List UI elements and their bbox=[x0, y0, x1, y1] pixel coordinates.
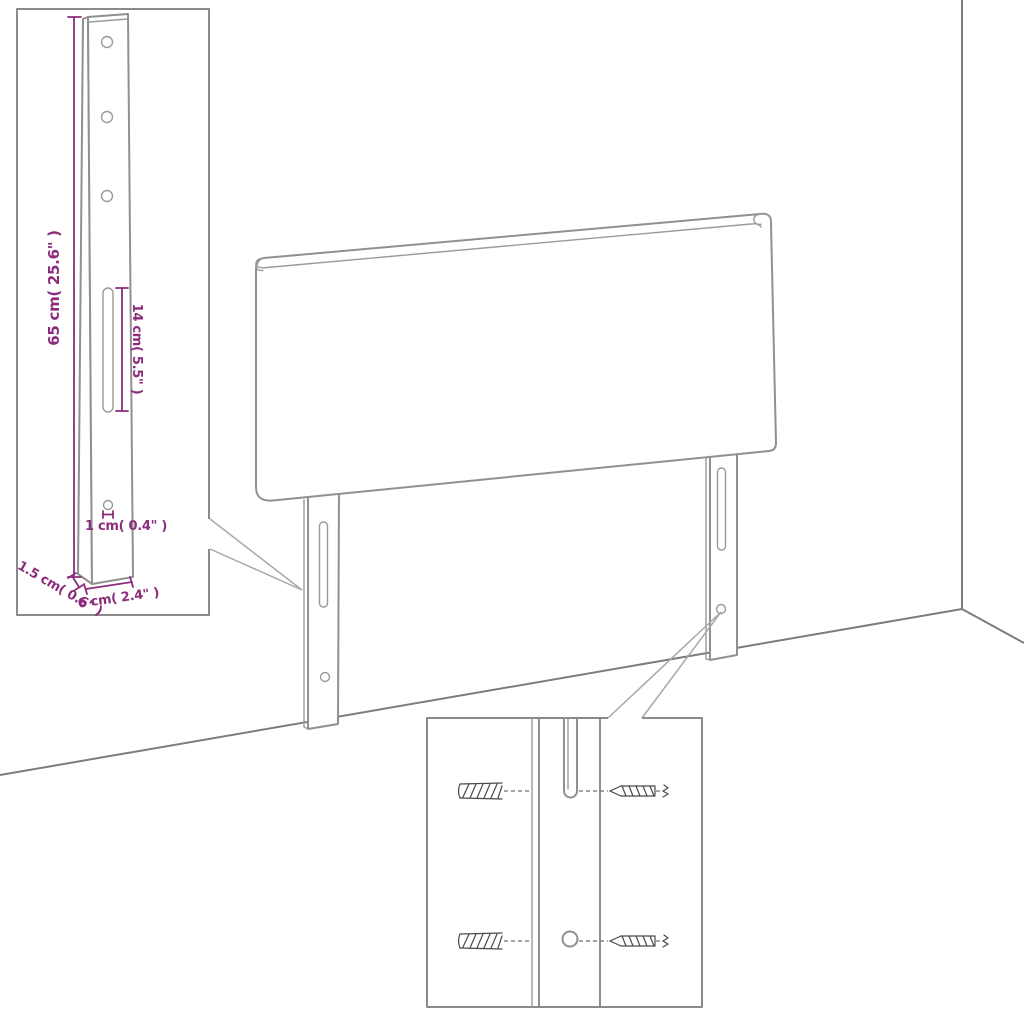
hardware-callout-wedge bbox=[608, 612, 721, 718]
left-leg-front-face bbox=[308, 488, 339, 729]
bracket-detail-inset: 65 cm( 25.6" ) 14 cm( 5.5" ) 1 cm( 0.4" … bbox=[15, 9, 209, 619]
dimension-slot-length-label: 14 cm( 5.5" ) bbox=[129, 304, 144, 395]
hardware-callout-line-left bbox=[608, 612, 721, 718]
floor-line-right bbox=[962, 609, 1024, 643]
dimension-hole-diameter-label: 1 cm( 0.4" ) bbox=[85, 519, 167, 534]
right-leg-side-bottom bbox=[706, 659, 710, 660]
bracket-callout-wedge bbox=[210, 519, 302, 590]
headboard-panel bbox=[256, 214, 776, 501]
hardware-detail-inset bbox=[427, 718, 702, 1007]
diagram-stage: 65 cm( 25.6" ) 14 cm( 5.5" ) 1 cm( 0.4" … bbox=[0, 0, 1024, 1024]
headboard-assembly-diagram: 65 cm( 25.6" ) 14 cm( 5.5" ) 1 cm( 0.4" … bbox=[0, 0, 1024, 1024]
bracket-front-face bbox=[88, 14, 133, 584]
hardware-callout-line-right bbox=[642, 612, 721, 718]
headboard-panel-face bbox=[256, 214, 776, 501]
headboard-left-leg bbox=[304, 488, 339, 729]
dimension-bracket-height-label: 65 cm( 25.6" ) bbox=[45, 230, 63, 345]
